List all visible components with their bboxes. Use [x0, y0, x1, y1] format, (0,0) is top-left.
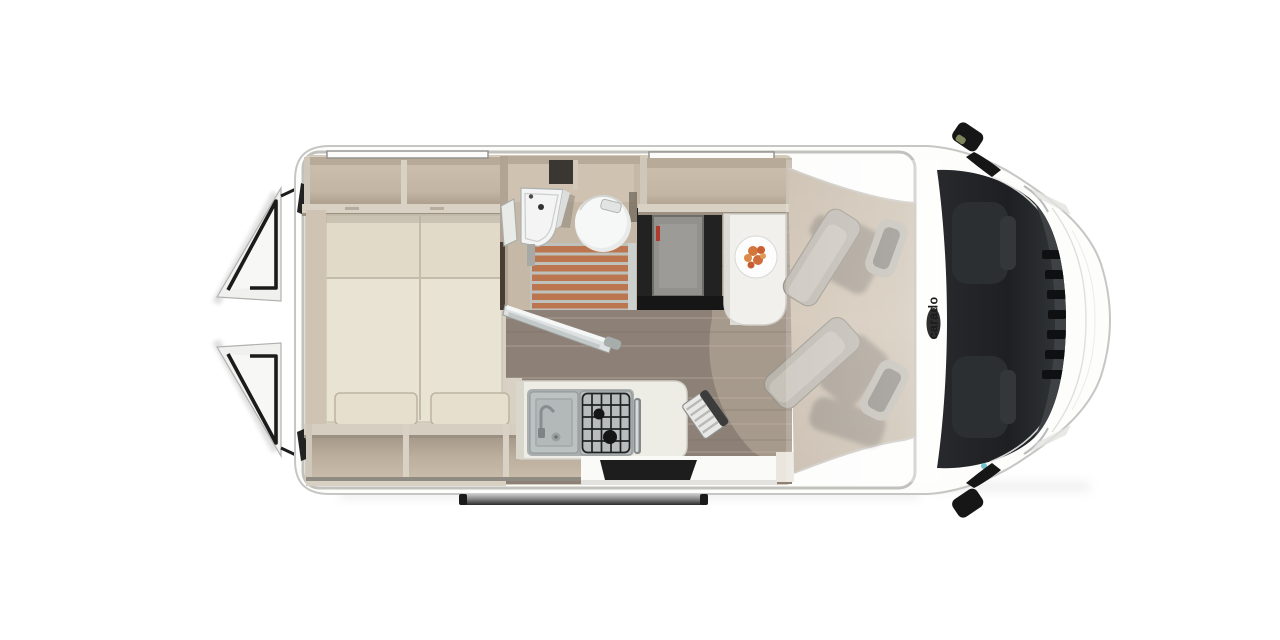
svg-text:carado: carado	[927, 297, 941, 340]
